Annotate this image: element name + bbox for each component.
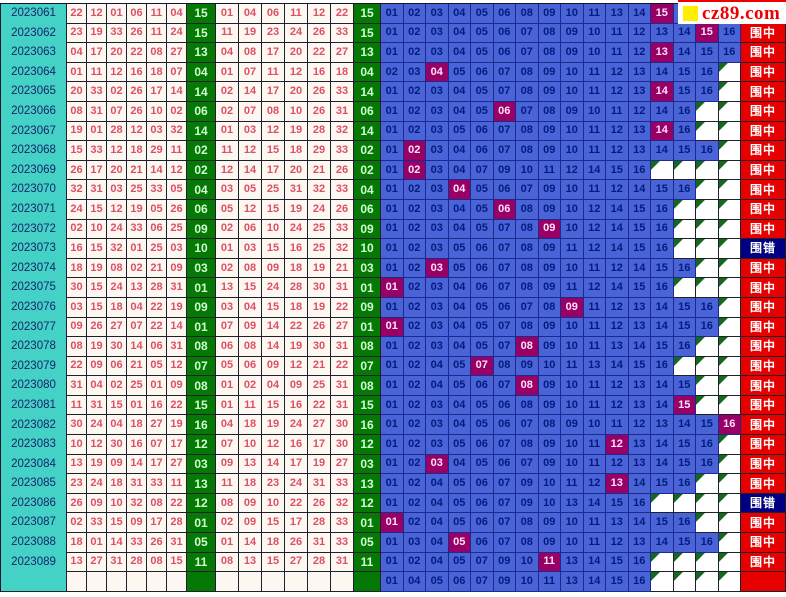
table-row: 2023067190128120332140103121928321401020… (1, 122, 786, 142)
trend-cell: 05 (449, 239, 472, 259)
trend-cell: 09 (539, 259, 562, 279)
blue-ball-cell: 01 (187, 318, 216, 338)
trend-cell: 07 (494, 435, 517, 455)
trend-cell: 14 (651, 435, 674, 455)
blue-ball-cell: 15 (354, 24, 381, 44)
trend-cell: 15 (651, 337, 674, 357)
trend-cell: 01 (381, 200, 404, 220)
table-row: 2023069261720211412021214172021260201020… (1, 161, 786, 181)
empty-trend-cell (696, 161, 719, 181)
trend-cell: 08 (539, 43, 562, 63)
trend-cell: 14 (674, 43, 697, 63)
trend-cell: 03 (426, 239, 449, 259)
trend-cell: 10 (584, 24, 607, 44)
trend-cell: 13 (629, 318, 652, 338)
red-ball-cell: 18 (107, 298, 127, 318)
sorted-red-ball-cell: 02 (216, 259, 239, 279)
trend-cell: 12 (606, 122, 629, 142)
trend-cell: 16 (696, 318, 719, 338)
sorted-red-ball-cell: 11 (216, 474, 239, 494)
sorted-red-ball-cell: 24 (308, 200, 331, 220)
red-ball-cell: 19 (67, 122, 87, 142)
period-cell: 2023080 (1, 376, 67, 396)
trend-cell: 01 (381, 161, 404, 181)
red-ball-cell: 01 (107, 4, 127, 24)
sorted-red-ball-cell: 28 (308, 122, 331, 142)
sorted-red-ball-cell: 12 (285, 357, 308, 377)
red-ball-cell: 26 (87, 318, 107, 338)
trend-cell: 13 (584, 357, 607, 377)
sorted-red-ball-cell: 26 (308, 494, 331, 514)
table-row: 2023063041720220827130408172022271301020… (1, 43, 786, 63)
red-ball-cell: 12 (107, 141, 127, 161)
trend-cell: 08 (516, 82, 539, 102)
logo-text: cz89.com (702, 4, 780, 23)
sorted-red-ball-cell: 33 (331, 513, 354, 533)
trend-cell: 01 (381, 239, 404, 259)
trend-hit-cell: 15 (651, 4, 674, 24)
blue-ball-cell: 12 (354, 435, 381, 455)
sorted-red-ball-cell (308, 572, 331, 592)
empty-trend-cell (696, 220, 719, 240)
empty-trend-cell (696, 200, 719, 220)
trend-cell: 02 (404, 200, 427, 220)
trend-cell: 11 (584, 259, 607, 279)
blue-ball-cell: 02 (187, 161, 216, 181)
sorted-red-ball-cell: 13 (239, 553, 262, 573)
trend-cell: 01 (381, 180, 404, 200)
sorted-red-ball-cell (331, 572, 354, 592)
trend-cell: 10 (561, 435, 584, 455)
trend-cell: 10 (561, 259, 584, 279)
empty-trend-cell (696, 239, 719, 259)
trend-cell: 03 (426, 43, 449, 63)
red-ball-cell: 33 (87, 141, 107, 161)
trend-cell: 04 (426, 553, 449, 573)
sorted-red-ball-cell: 13 (239, 455, 262, 475)
sorted-red-ball-cell: 17 (262, 161, 285, 181)
blue-ball-cell: 15 (187, 24, 216, 44)
red-ball-cell: 13 (67, 553, 87, 573)
sorted-red-ball-cell: 07 (216, 435, 239, 455)
sorted-red-ball-cell: 09 (216, 455, 239, 475)
sorted-red-ball-cell: 13 (216, 278, 239, 298)
sorted-red-ball-cell: 09 (239, 513, 262, 533)
period-cell: 2023073 (1, 239, 67, 259)
trend-cell: 16 (696, 455, 719, 475)
sorted-red-ball-cell: 26 (308, 24, 331, 44)
sorted-red-ball-cell: 33 (331, 82, 354, 102)
result-cell: 围中 (741, 122, 786, 142)
trend-cell: 16 (651, 200, 674, 220)
blue-ball-cell: 04 (187, 63, 216, 83)
red-ball-cell: 10 (147, 102, 167, 122)
trend-cell: 03 (426, 220, 449, 240)
trend-cell: 15 (674, 82, 697, 102)
table-row: 2023071241512190526060512151924260601020… (1, 200, 786, 220)
table-row: 2023070323103253305040305253132330401020… (1, 180, 786, 200)
red-ball-cell: 08 (67, 102, 87, 122)
trend-cell: 01 (381, 455, 404, 475)
empty-trend-cell (719, 278, 742, 298)
red-ball-cell: 15 (107, 396, 127, 416)
sorted-red-ball-cell: 01 (216, 122, 239, 142)
blue-ball-cell: 08 (354, 376, 381, 396)
red-ball-cell: 01 (87, 533, 107, 553)
trend-cell: 01 (381, 396, 404, 416)
empty-trend-cell (696, 102, 719, 122)
result-cell: 围中 (741, 220, 786, 240)
sorted-red-ball-cell: 19 (285, 122, 308, 142)
trend-cell: 12 (606, 533, 629, 553)
trend-cell: 14 (584, 572, 607, 592)
trend-hit-cell: 03 (426, 455, 449, 475)
blue-ball-cell: 15 (187, 4, 216, 24)
sorted-red-ball-cell: 33 (331, 220, 354, 240)
sorted-red-ball-cell: 15 (239, 278, 262, 298)
sorted-red-ball-cell: 26 (285, 533, 308, 553)
trend-cell: 05 (471, 455, 494, 475)
empty-trend-cell (696, 180, 719, 200)
result-cell: 围中 (741, 82, 786, 102)
trend-cell: 06 (471, 533, 494, 553)
red-ball-cell: 12 (87, 435, 107, 455)
trend-cell: 13 (561, 553, 584, 573)
trend-cell: 14 (651, 396, 674, 416)
red-ball-cell: 15 (87, 298, 107, 318)
result-cell: 围中 (741, 24, 786, 44)
trend-cell: 03 (426, 200, 449, 220)
red-ball-cell: 22 (167, 396, 187, 416)
trend-cell: 11 (606, 43, 629, 63)
sorted-red-ball-cell: 18 (285, 298, 308, 318)
trend-cell: 04 (449, 200, 472, 220)
sorted-red-ball-cell: 22 (331, 298, 354, 318)
trend-cell: 15 (674, 455, 697, 475)
blue-ball-cell: 02 (187, 141, 216, 161)
red-ball-cell: 30 (107, 337, 127, 357)
red-ball-cell: 33 (127, 220, 147, 240)
trend-cell: 10 (584, 43, 607, 63)
trend-cell: 10 (516, 553, 539, 573)
trend-cell: 08 (516, 318, 539, 338)
sorted-red-ball-cell: 18 (285, 259, 308, 279)
red-ball-cell: 22 (167, 494, 187, 514)
red-ball-cell: 24 (67, 200, 87, 220)
trend-cell: 09 (539, 63, 562, 83)
trend-cell: 04 (426, 533, 449, 553)
red-ball-cell: 04 (87, 376, 107, 396)
sorted-red-ball-cell: 11 (262, 63, 285, 83)
trend-cell: 08 (516, 513, 539, 533)
trend-cell: 02 (404, 376, 427, 396)
sorted-red-ball-cell (262, 572, 285, 592)
blue-ball-cell: 16 (187, 415, 216, 435)
trend-cell: 01 (381, 415, 404, 435)
trend-cell: 05 (471, 200, 494, 220)
red-ball-cell: 09 (87, 357, 107, 377)
sorted-red-ball-cell: 11 (239, 396, 262, 416)
sorted-red-ball-cell: 33 (331, 533, 354, 553)
red-ball-cell: 32 (167, 122, 187, 142)
red-ball-cell: 30 (107, 435, 127, 455)
sorted-red-ball-cell: 14 (262, 318, 285, 338)
trend-cell: 11 (584, 376, 607, 396)
red-ball-cell: 03 (147, 122, 167, 142)
sorted-red-ball-cell: 11 (216, 24, 239, 44)
period-cell: 2023062 (1, 24, 67, 44)
trend-cell: 01 (381, 474, 404, 494)
red-ball-cell: 11 (147, 24, 167, 44)
trend-cell: 02 (404, 553, 427, 573)
sorted-red-ball-cell: 25 (262, 180, 285, 200)
red-ball-cell: 05 (167, 180, 187, 200)
empty-trend-cell (719, 318, 742, 338)
sorted-red-ball-cell: 06 (262, 4, 285, 24)
trend-cell: 02 (404, 455, 427, 475)
trend-cell: 16 (696, 435, 719, 455)
trend-cell: 15 (606, 553, 629, 573)
trend-hit-cell: 11 (539, 553, 562, 573)
trend-cell: 09 (539, 318, 562, 338)
trend-cell: 10 (561, 82, 584, 102)
empty-trend-cell (674, 553, 697, 573)
red-ball-cell (147, 572, 167, 592)
empty-trend-cell (674, 161, 697, 181)
sorted-red-ball-cell: 26 (331, 200, 354, 220)
blue-ball-cell: 03 (187, 259, 216, 279)
trend-cell: 03 (426, 4, 449, 24)
sorted-red-ball-cell: 24 (262, 278, 285, 298)
red-ball-cell: 10 (107, 494, 127, 514)
trend-cell: 03 (426, 415, 449, 435)
trend-hit-cell: 14 (651, 122, 674, 142)
trend-hit-cell: 02 (404, 161, 427, 181)
table-row: 2023066083107261002060207081026310601020… (1, 102, 786, 122)
empty-trend-cell (696, 396, 719, 416)
trend-cell: 07 (516, 455, 539, 475)
red-ball-cell: 31 (167, 278, 187, 298)
trend-cell: 11 (584, 396, 607, 416)
sorted-red-ball-cell: 22 (285, 494, 308, 514)
trend-cell: 07 (494, 239, 517, 259)
red-ball-cell: 20 (107, 161, 127, 181)
table-row: 2023081113115011622150111151622311501020… (1, 396, 786, 416)
trend-cell: 08 (516, 396, 539, 416)
trend-hit-cell: 05 (449, 533, 472, 553)
empty-trend-cell (674, 572, 697, 592)
sorted-red-ball-cell (239, 572, 262, 592)
blue-ball-cell: 08 (187, 376, 216, 396)
sorted-red-ball-cell: 14 (262, 455, 285, 475)
trend-cell: 02 (404, 494, 427, 514)
trend-cell: 15 (674, 298, 697, 318)
trend-cell: 15 (629, 278, 652, 298)
sorted-red-ball-cell: 31 (308, 533, 331, 553)
red-ball-cell: 31 (167, 337, 187, 357)
site-logo[interactable]: cz89.com (678, 0, 786, 24)
trend-hit-cell: 15 (674, 396, 697, 416)
sorted-red-ball-cell: 30 (331, 415, 354, 435)
red-ball-cell: 17 (167, 435, 187, 455)
trend-cell: 16 (719, 43, 742, 63)
red-ball-cell: 22 (67, 4, 87, 24)
sorted-red-ball-cell: 19 (262, 415, 285, 435)
result-cell: 围中 (741, 278, 786, 298)
blue-ball-cell: 08 (187, 337, 216, 357)
red-ball-cell: 30 (67, 415, 87, 435)
trend-cell: 08 (539, 415, 562, 435)
trend-cell: 05 (471, 43, 494, 63)
sorted-red-ball-cell: 32 (331, 239, 354, 259)
trend-hit-cell: 14 (651, 82, 674, 102)
trend-cell: 02 (404, 513, 427, 533)
trend-cell: 04 (449, 415, 472, 435)
red-ball-cell: 18 (127, 415, 147, 435)
trend-cell: 08 (494, 357, 517, 377)
trend-cell: 07 (471, 572, 494, 592)
trend-cell: 03 (426, 278, 449, 298)
period-cell: 2023066 (1, 102, 67, 122)
red-ball-cell: 19 (127, 200, 147, 220)
sorted-red-ball-cell: 22 (331, 4, 354, 24)
trend-cell: 10 (516, 161, 539, 181)
trend-cell: 14 (629, 337, 652, 357)
table-row: 2023073161532012503100103151625321001020… (1, 239, 786, 259)
red-ball-cell: 06 (107, 357, 127, 377)
trend-cell: 07 (494, 513, 517, 533)
trend-cell: 02 (404, 24, 427, 44)
sorted-red-ball-cell: 12 (285, 63, 308, 83)
table-row: 010405060709101113141516 (1, 572, 786, 592)
blue-ball-cell: 10 (187, 239, 216, 259)
trend-cell: 15 (696, 43, 719, 63)
trend-cell: 15 (696, 415, 719, 435)
trend-cell: 15 (651, 180, 674, 200)
period-cell (1, 572, 67, 592)
trend-cell: 07 (471, 553, 494, 573)
sorted-red-ball-cell: 30 (308, 337, 331, 357)
red-ball-cell: 18 (67, 533, 87, 553)
red-ball-cell: 24 (167, 24, 187, 44)
table-row: 2023080310402250109080102040925310801020… (1, 376, 786, 396)
empty-trend-cell (674, 494, 697, 514)
blue-ball-cell: 13 (187, 43, 216, 63)
blue-ball-cell: 13 (354, 43, 381, 63)
trend-cell: 05 (471, 24, 494, 44)
sorted-red-ball-cell: 08 (239, 337, 262, 357)
trend-cell: 09 (561, 102, 584, 122)
trend-cell: 10 (561, 337, 584, 357)
trend-cell: 08 (539, 102, 562, 122)
red-ball-cell: 07 (127, 318, 147, 338)
sorted-red-ball-cell: 17 (285, 455, 308, 475)
trend-cell: 14 (629, 180, 652, 200)
red-ball-cell: 25 (147, 239, 167, 259)
trend-cell: 02 (404, 278, 427, 298)
red-ball-cell: 15 (107, 513, 127, 533)
red-ball-cell: 11 (167, 474, 187, 494)
sorted-red-ball-cell: 12 (239, 141, 262, 161)
empty-trend-cell (719, 513, 742, 533)
sorted-red-ball-cell: 33 (331, 474, 354, 494)
result-cell: 围错 (741, 239, 786, 259)
trend-cell: 11 (584, 533, 607, 553)
red-ball-cell: 26 (127, 102, 147, 122)
trend-cell: 07 (494, 494, 517, 514)
trend-cell: 15 (674, 63, 697, 83)
empty-trend-cell (674, 239, 697, 259)
trend-cell: 01 (381, 4, 404, 24)
trend-cell: 15 (674, 318, 697, 338)
red-ball-cell: 33 (147, 474, 167, 494)
sorted-red-ball-cell: 24 (285, 474, 308, 494)
sorted-red-ball-cell: 18 (331, 63, 354, 83)
trend-cell: 16 (674, 180, 697, 200)
table-row: 2023083101230160717120710121617301201020… (1, 435, 786, 455)
red-ball-cell: 09 (167, 376, 187, 396)
blue-ball-cell: 04 (187, 180, 216, 200)
trend-cell: 01 (381, 376, 404, 396)
trend-cell: 04 (426, 513, 449, 533)
trend-cell: 03 (426, 24, 449, 44)
trend-cell: 15 (651, 474, 674, 494)
red-ball-cell: 12 (167, 161, 187, 181)
trend-cell: 07 (516, 102, 539, 122)
trend-cell: 04 (426, 494, 449, 514)
trend-cell: 04 (404, 572, 427, 592)
sorted-red-ball-cell: 23 (262, 474, 285, 494)
empty-trend-cell (719, 474, 742, 494)
sorted-red-ball-cell: 31 (331, 396, 354, 416)
table-row: 2023085232418313311131118232431331301020… (1, 474, 786, 494)
trend-cell: 08 (516, 63, 539, 83)
trend-cell: 06 (471, 239, 494, 259)
trend-cell: 13 (606, 4, 629, 24)
trend-cell: 07 (494, 122, 517, 142)
sorted-red-ball-cell: 08 (239, 43, 262, 63)
red-ball-cell: 27 (87, 553, 107, 573)
sorted-red-ball-cell: 01 (216, 396, 239, 416)
trend-cell: 06 (494, 415, 517, 435)
red-ball-cell: 27 (107, 318, 127, 338)
trend-hit-cell: 01 (381, 513, 404, 533)
trend-cell: 06 (494, 4, 517, 24)
trend-cell: 10 (561, 200, 584, 220)
trend-cell: 15 (606, 494, 629, 514)
trend-cell: 12 (606, 63, 629, 83)
red-ball-cell: 31 (107, 553, 127, 573)
table-row: 2023084131909141727030913141719270301020… (1, 455, 786, 475)
trend-cell: 06 (471, 513, 494, 533)
red-ball-cell: 11 (67, 396, 87, 416)
trend-cell: 07 (494, 337, 517, 357)
trend-cell: 05 (449, 63, 472, 83)
table-row: 2023062231933261124151119232426331501020… (1, 24, 786, 44)
sorted-red-ball-cell: 27 (331, 43, 354, 63)
blue-ball-cell: 03 (354, 455, 381, 475)
blue-ball-cell: 05 (187, 533, 216, 553)
trend-cell: 05 (426, 572, 449, 592)
sorted-red-ball-cell: 14 (239, 533, 262, 553)
trend-cell: 11 (584, 141, 607, 161)
trend-cell: 09 (539, 278, 562, 298)
sorted-red-ball-cell: 01 (216, 376, 239, 396)
trend-cell: 12 (629, 24, 652, 44)
empty-trend-cell (696, 376, 719, 396)
red-ball-cell: 03 (167, 239, 187, 259)
sorted-red-ball-cell: 24 (285, 220, 308, 240)
